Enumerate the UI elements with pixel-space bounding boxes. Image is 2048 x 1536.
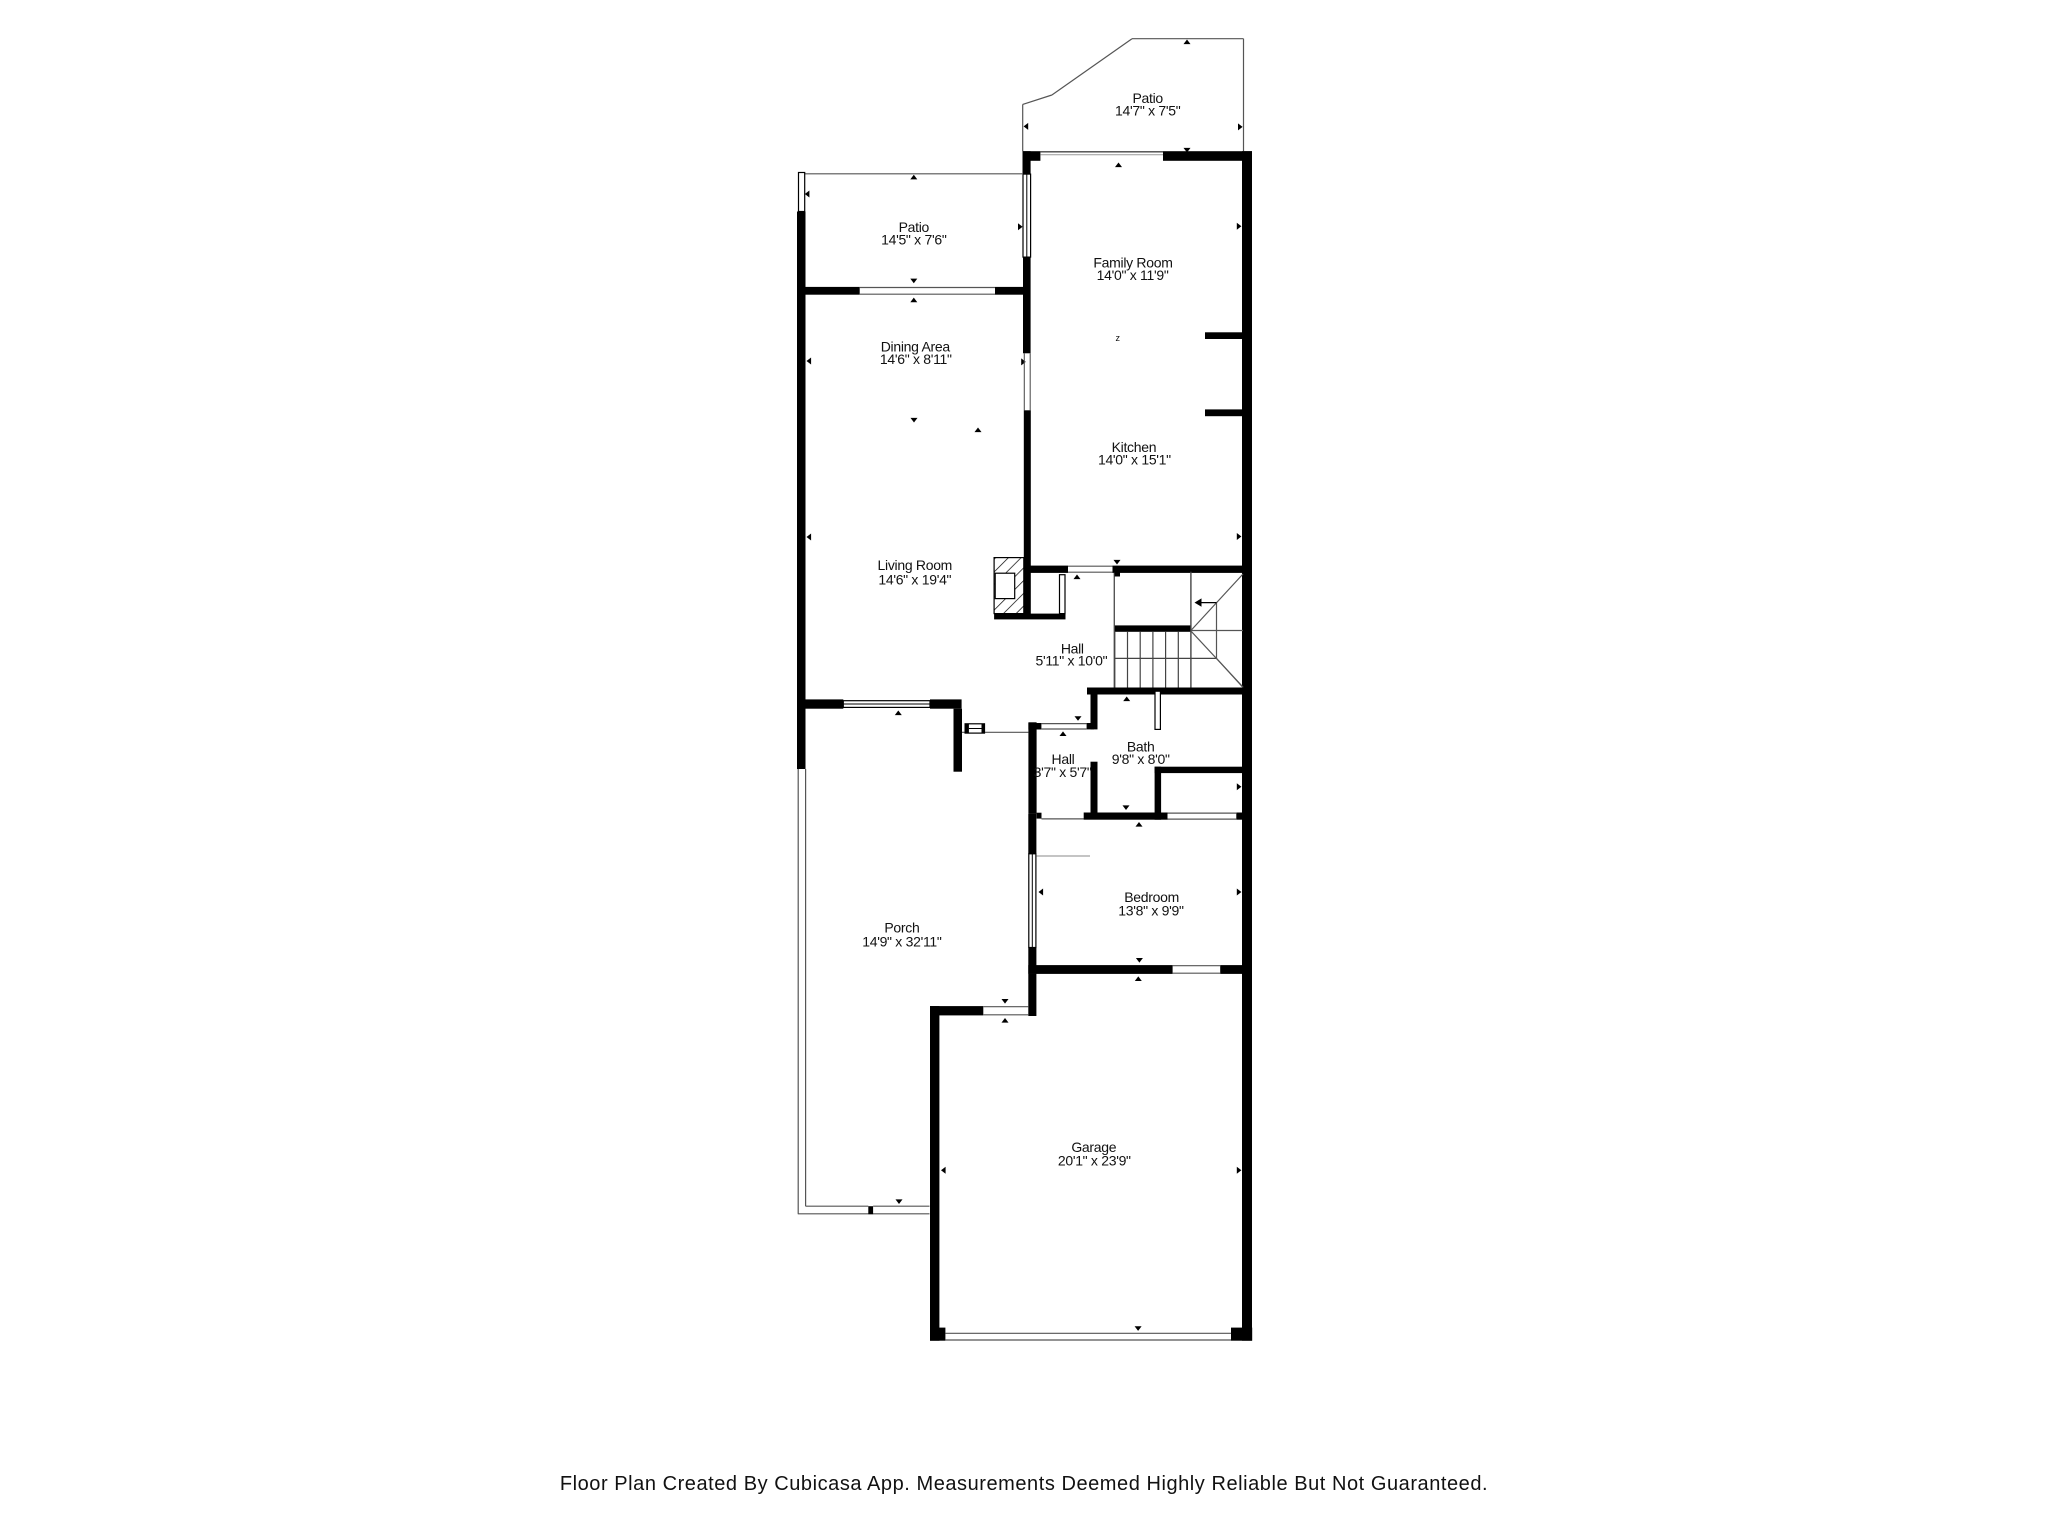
svg-text:14'0" x 11'9": 14'0" x 11'9" xyxy=(1097,267,1169,283)
svg-text:z: z xyxy=(1115,333,1120,343)
svg-text:14'5" x 7'6": 14'5" x 7'6" xyxy=(881,232,947,248)
svg-text:14'7" x 7'5": 14'7" x 7'5" xyxy=(1115,103,1181,119)
svg-text:9'8" x 8'0": 9'8" x 8'0" xyxy=(1112,751,1170,767)
svg-text:14'6" x 19'4": 14'6" x 19'4" xyxy=(878,571,951,587)
svg-text:13'8" x 9'9": 13'8" x 9'9" xyxy=(1118,902,1184,918)
svg-text:Floor Plan Created By Cubicasa: Floor Plan Created By Cubicasa App. Meas… xyxy=(560,1473,1488,1495)
svg-text:3'7" x 5'7": 3'7" x 5'7" xyxy=(1034,764,1092,780)
svg-text:20'1" x 23'9": 20'1" x 23'9" xyxy=(1058,1153,1131,1169)
svg-text:14'9" x 32'11": 14'9" x 32'11" xyxy=(862,934,942,950)
svg-text:14'0" x 15'1": 14'0" x 15'1" xyxy=(1098,451,1171,467)
svg-text:5'11" x 10'0": 5'11" x 10'0" xyxy=(1035,653,1107,669)
svg-text:14'6" x 8'11": 14'6" x 8'11" xyxy=(880,351,952,367)
